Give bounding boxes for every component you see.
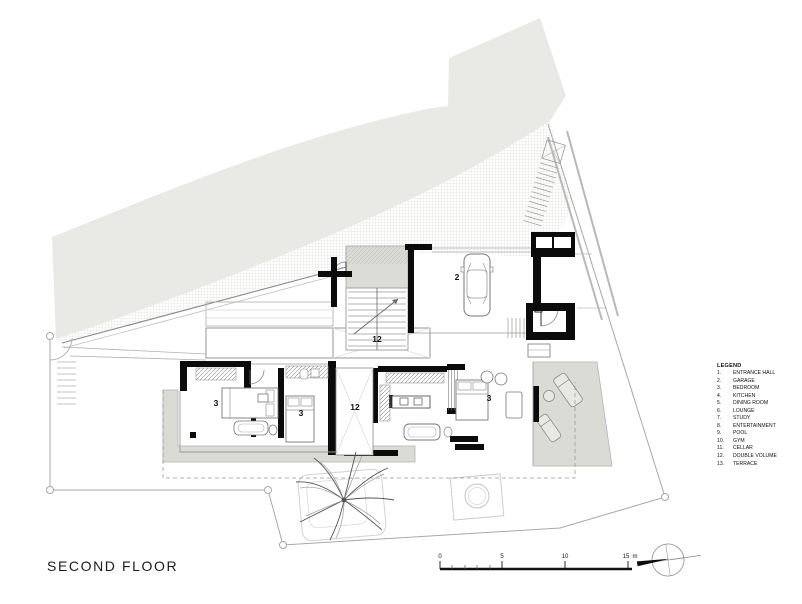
car	[461, 254, 493, 316]
boundary-peg	[47, 487, 54, 494]
floor-plan-drawing: 2 3 3 3 12 12 0 5 10 15 m	[0, 0, 802, 604]
scale-unit: m	[633, 554, 638, 560]
legend-item: 3.BEDROOM	[717, 385, 802, 393]
door-swing	[250, 370, 264, 384]
toilet	[269, 425, 277, 435]
legend-item: 12.DOUBLE VOLUME	[717, 453, 802, 461]
toilet	[300, 369, 308, 379]
exterior-steps	[57, 362, 76, 404]
small-stair-treads	[508, 318, 528, 338]
toilet	[444, 427, 452, 437]
boundary-peg	[662, 494, 669, 501]
legend-item: 1.ENTRANCE HALL	[717, 370, 802, 378]
side-table	[544, 391, 555, 402]
legend-item: 8.ENTERTAINMENT	[717, 423, 802, 431]
bed	[286, 396, 314, 442]
vanity	[392, 396, 430, 408]
legend-item: 5.DINING ROOM	[717, 400, 802, 408]
wardrobe	[380, 385, 390, 421]
basin	[311, 369, 319, 377]
boundary-peg	[47, 333, 54, 340]
legend-item: 7.STUDY	[717, 415, 802, 423]
page-title: SECOND FLOOR	[47, 558, 178, 574]
room-label-bedroom-left: 3	[214, 398, 219, 408]
boundary-peg	[265, 487, 272, 494]
legend-item: 13.TERRACE	[717, 461, 802, 469]
bed	[222, 388, 278, 418]
garage	[408, 248, 533, 333]
legend: LEGEND 1.ENTRANCE HALL 2.GARAGE 3.BEDROO…	[717, 362, 802, 468]
basin	[258, 394, 268, 402]
lounge-table	[528, 344, 550, 357]
scale-tick-10: 10	[562, 554, 569, 560]
room-label-bedroom-middle: 3	[299, 408, 304, 418]
wardrobe	[196, 368, 236, 380]
bed	[456, 380, 488, 420]
scale-tick-15: 15	[623, 554, 630, 560]
armchair	[495, 373, 507, 385]
legend-item: 2.GARAGE	[717, 378, 802, 386]
legend-item: 6.LOUNGE	[717, 408, 802, 416]
chaise	[506, 392, 522, 418]
bedroom-right	[448, 362, 533, 466]
bathtub	[404, 424, 440, 440]
room-label-garage: 2	[455, 272, 460, 282]
room-label-double-volume-lower: 12	[350, 402, 360, 412]
legend-item: 10.GYM	[717, 438, 802, 446]
scale-bar: 0 5 10 15 m	[438, 554, 637, 569]
legend-item: 9.POOL	[717, 430, 802, 438]
wardrobe	[386, 373, 444, 383]
spa-deck	[450, 474, 503, 520]
room-label-double-volume-upper: 12	[372, 334, 382, 344]
scale-tick-0: 0	[438, 554, 442, 560]
legend-item: 11.CELLAR	[717, 445, 802, 453]
legend-heading: LEGEND	[717, 362, 802, 370]
north-arrow-icon	[635, 540, 703, 581]
legend-item: 4.KITCHEN	[717, 393, 802, 401]
scale-tick-5: 5	[500, 554, 504, 560]
bedroom-left	[180, 368, 344, 452]
palm-tree	[296, 452, 394, 540]
room-label-bedroom-right: 3	[487, 393, 492, 403]
door-swing	[541, 309, 558, 326]
boundary-peg	[280, 542, 287, 549]
floor-plan-sheet: 2 3 3 3 12 12 0 5 10 15 m LEGEND 1.ENTRA…	[0, 0, 802, 604]
lower-level-ghosts	[297, 468, 503, 541]
